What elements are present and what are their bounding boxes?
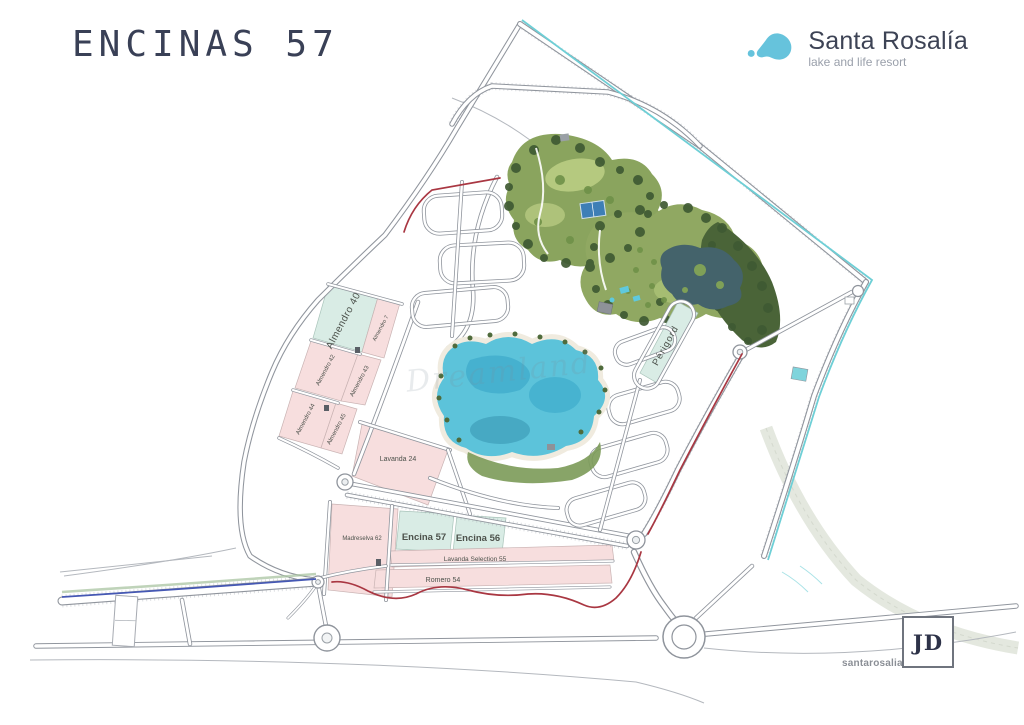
lake-logo-icon [746,30,798,70]
plot-label-romero-54: Romero 54 [426,577,461,584]
small-parcel [112,595,137,646]
plot-label-encina-56: Encina 56 [456,533,500,544]
roundabout [337,474,353,490]
pond-island [694,264,706,276]
roundabout-large [663,616,705,658]
park-layer [504,133,780,347]
map-icon [355,347,360,353]
brand-tagline: lake and life resort [808,55,968,69]
plot-label-lavanda-24: Lavanda 24 [380,456,417,463]
cyan-marker [791,367,808,381]
lake-depth [470,416,530,444]
plot-romero-54 [374,565,612,588]
plot-label-madreselva-62: Madreselva 62 [342,536,382,542]
cyan-swale [782,572,808,592]
page-title: ENCINAS 57 [72,24,339,65]
left-channel [64,548,236,576]
roundabout [312,576,324,588]
tennis-court [580,200,606,218]
pool [610,298,615,303]
map-icon [324,405,329,411]
site-plan-map: Dreamland Almendro 40 Almendro 7 Almendr… [0,0,1024,725]
map-icon [376,559,381,566]
brochure-page: Dreamland Almendro 40 Almendro 7 Almendr… [0,0,1024,725]
road-avenue [634,354,742,626]
brand-name: Santa Rosalía [808,28,968,54]
cyan-swale [800,566,822,584]
jd-badge: JD [902,616,954,668]
lawn [525,203,565,227]
building [560,133,570,141]
roundabout [627,531,645,549]
plot-label-encina-57: Encina 57 [402,532,446,543]
website-name: santarosalia [842,658,903,669]
pond-island [682,287,688,293]
rural-road [60,556,212,572]
roundabout [314,625,340,651]
plot-label-lavanda-selection-55: Lavanda Selection 55 [444,556,507,563]
beach-kiosk [547,444,555,450]
pond-island [716,281,724,289]
brand-logo: Santa Rosalía lake and life resort [746,28,968,70]
